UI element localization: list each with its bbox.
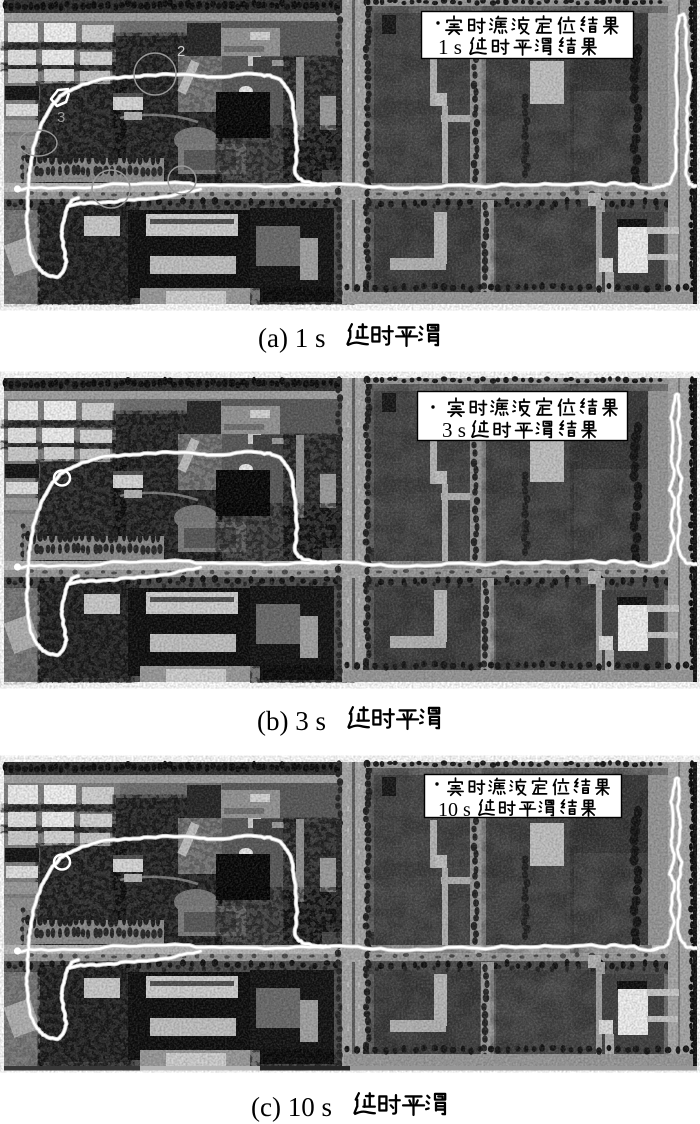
svg-text:(c) 10 s: (c) 10 s bbox=[251, 1092, 332, 1122]
svg-text:3: 3 bbox=[57, 109, 65, 126]
svg-text:(b) 3 s: (b) 3 s bbox=[257, 706, 326, 736]
svg-text:1 s: 1 s bbox=[438, 35, 462, 59]
svg-text:2: 2 bbox=[177, 43, 185, 60]
svg-text:10 s: 10 s bbox=[438, 799, 471, 821]
svg-text:3 s: 3 s bbox=[442, 418, 466, 442]
svg-text:(a) 1 s: (a) 1 s bbox=[258, 323, 325, 353]
